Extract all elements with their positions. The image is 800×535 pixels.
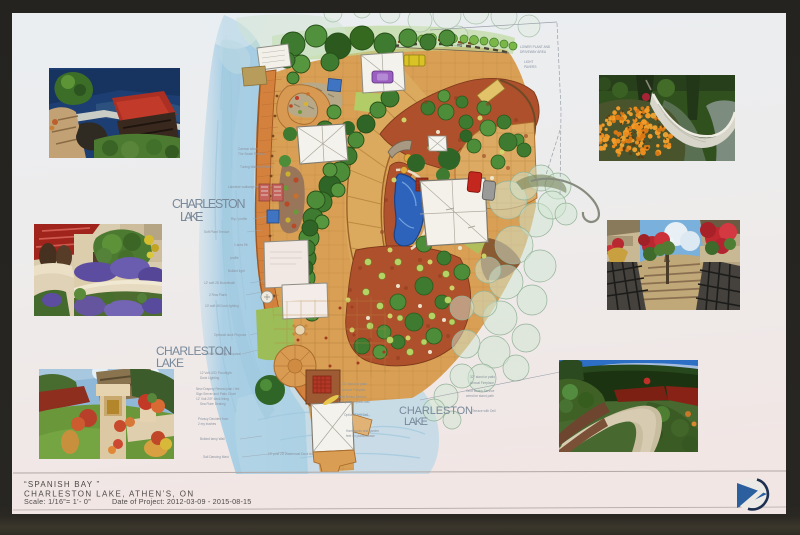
svg-text:Hammocks and garden: Hammocks and garden (346, 429, 379, 433)
svg-text:New Drapery Reveal plan / tint: New Drapery Reveal plan / tint (196, 387, 239, 391)
svg-text:The Swale Refugee: The Swale Refugee (238, 152, 266, 156)
svg-text:“SPANISH BAY ”: “SPANISH BAY ” (24, 480, 100, 489)
svg-text:Dock Lighting: Dock Lighting (200, 376, 220, 380)
svg-text:LAKE: LAKE (404, 416, 430, 428)
svg-text:Privacy Decided from: Privacy Decided from (198, 417, 229, 421)
svg-text:12' soft 2D Boardwalk: 12' soft 2D Boardwalk (204, 281, 235, 285)
svg-text:Sea Flare Dealing: Sea Flare Dealing (200, 402, 226, 406)
svg-text:Annual Fireplace: Annual Fireplace (470, 381, 494, 385)
svg-text:LOWER PLANT AND: LOWER PLANT AND (520, 45, 551, 49)
svg-text:Sail Dancing Mast: Sail Dancing Mast (203, 455, 229, 459)
svg-text:Scale: 1/16”= 1’- 0”: Scale: 1/16”= 1’- 0” (24, 497, 91, 506)
svg-text:1 area 9ft: 1 area 9ft (234, 243, 248, 247)
svg-text:10' post 2D Watermast Dock lea: 10' post 2D Watermast Dock leaning (268, 452, 320, 456)
svg-text:PAVERS: PAVERS (524, 65, 536, 69)
svg-text:LIGHT: LIGHT (524, 60, 533, 64)
svg-text:10' soft 4ft Dock lighting: 10' soft 4ft Dock lighting (205, 304, 239, 308)
svg-text:Lakeside walkway edge: Lakeside walkway edge (228, 185, 262, 189)
svg-text:10 ft patio to patio wall: 10 ft patio to patio wall (338, 400, 370, 404)
svg-text:10° stand or patio: 10° stand or patio (342, 382, 367, 386)
svg-text:CHARLESTON: CHARLESTON (172, 197, 248, 211)
svg-text:feet on planted base: feet on planted base (346, 434, 375, 438)
svg-text:Optional dock Purpose: Optional dock Purpose (214, 333, 246, 337)
svg-text:DRIVEWAY AREA: DRIVEWAY AREA (520, 50, 547, 54)
svg-text:Date of Project: 2012-03-09 -: Date of Project: 2012-03-09 - 2015-08-15 (112, 497, 251, 506)
svg-text:Rip / profile: Rip / profile (231, 217, 247, 221)
svg-text:Tuning Wall and Pillars: Tuning Wall and Pillars (240, 165, 273, 169)
svg-text:LAKE: LAKE (180, 210, 206, 224)
svg-text:profile: profile (230, 256, 239, 260)
svg-text:Sign Server and Patio Chart: Sign Server and Patio Chart (196, 392, 236, 396)
svg-text:Orbit Bonus Service: Orbit Bonus Service (466, 389, 495, 393)
svg-text:Orbit Bonus Service: Orbit Bonus Service (338, 395, 367, 399)
svg-text:2 my bushes: 2 my bushes (198, 422, 216, 426)
svg-text:Optional self Dell: Optional self Dell (344, 413, 368, 417)
svg-text:Annual Potoplan: Annual Potoplan (342, 388, 366, 392)
svg-text:wired be stand path: wired be stand path (466, 394, 494, 398)
svg-text:12 Volt LED Floodlight: 12 Volt LED Floodlight (200, 371, 232, 375)
svg-text:Cannon wharf: Cannon wharf (238, 147, 258, 151)
svg-text:Terrace with Dell: Terrace with Dell (472, 409, 496, 413)
svg-text:12' Volt 2/0″ deck lining: 12' Volt 2/0″ deck lining (196, 397, 229, 401)
svg-text:Soft Plant Terrace: Soft Plant Terrace (204, 230, 230, 234)
svg-text:Bollard light: Bollard light (228, 269, 245, 273)
svg-text:Bollard lamp Wall: Bollard lamp Wall (200, 437, 225, 441)
svg-text:2 Row Plank: 2 Row Plank (209, 293, 227, 297)
svg-text:LAKE: LAKE (156, 356, 186, 370)
svg-text:32° stand or patio: 32° stand or patio (470, 375, 495, 379)
